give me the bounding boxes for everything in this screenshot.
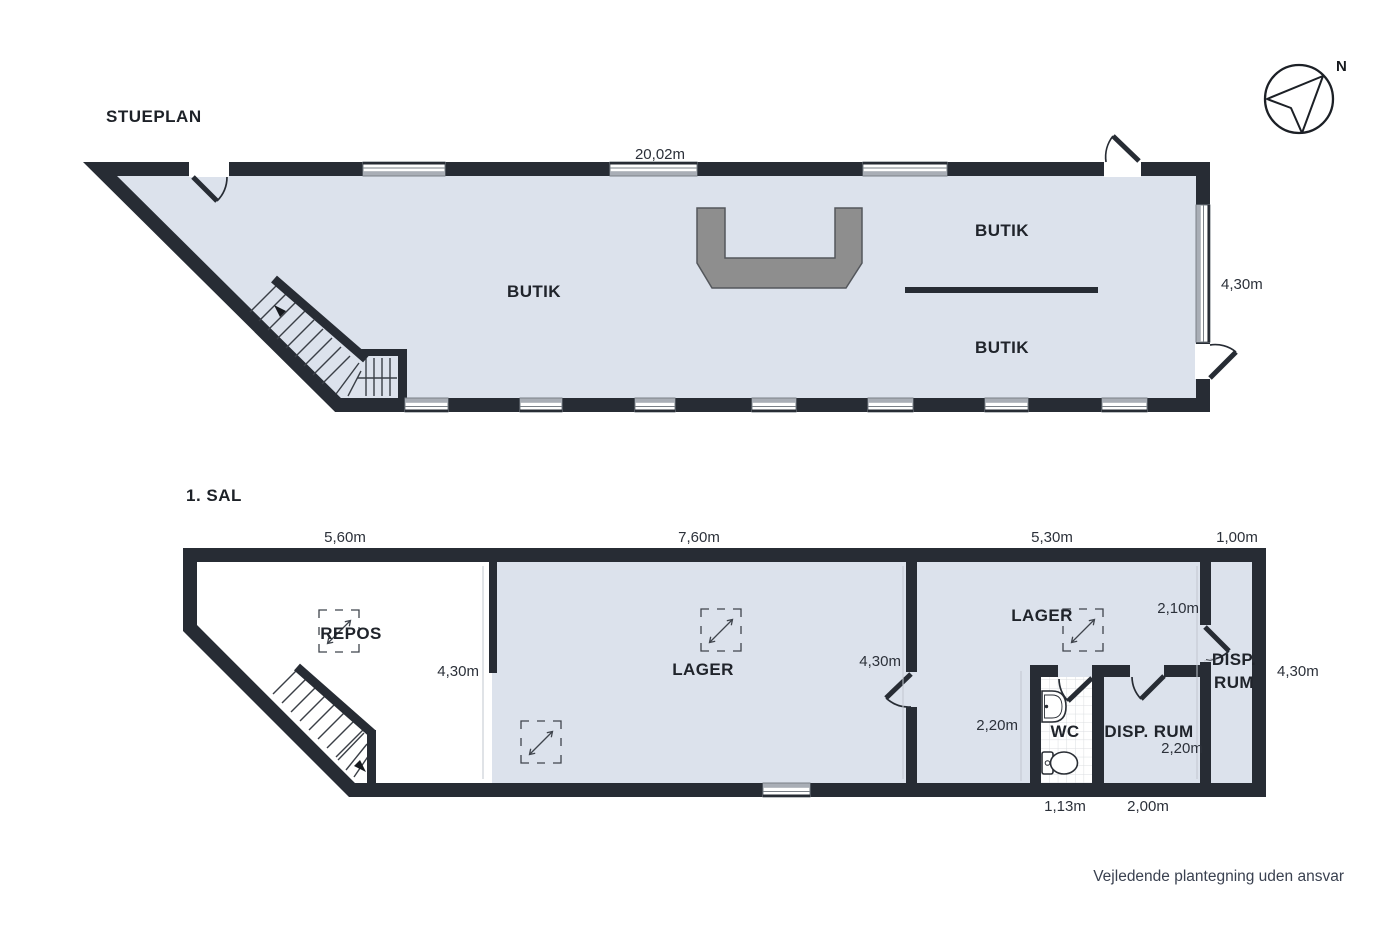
sink-icon: [1042, 691, 1066, 722]
entrance-door-top-right: [1104, 136, 1141, 177]
plan-title-sal1: 1. SAL: [186, 486, 242, 505]
north-label: N: [1336, 58, 1347, 75]
dim-label-disp-center-width: 2,00m: [1127, 798, 1169, 815]
dim-label-wc-width: 1,13m: [1044, 798, 1086, 815]
footer-note: Vejledende plantegning uden ansvar: [1093, 868, 1344, 885]
window: [985, 398, 1028, 412]
dim-label-width: 20,02m: [635, 146, 685, 163]
window: [635, 398, 675, 412]
dim-label-disp-right-wall: 2,10m: [1157, 600, 1199, 617]
dim-label-disp-right-width: 1,00m: [1216, 529, 1258, 546]
stueplan-plan: STUEPLAN 20,02m 4,30m BUTIK BUTIK BUTIK: [100, 107, 1263, 412]
window: [868, 398, 913, 412]
dim-label-lager-right-width: 5,30m: [1031, 529, 1073, 546]
wall-disp-right-bottom: [1200, 662, 1211, 790]
window: [610, 162, 697, 176]
room-label-disp-right-line1: DISP.: [1212, 650, 1256, 669]
window: [520, 398, 562, 412]
room-label-lager-right: LAGER: [1011, 606, 1073, 625]
wall-disp-top-right: [1164, 665, 1211, 677]
stair-landing-wall: [356, 349, 405, 356]
dim-label-repos-depth: 4,30m: [437, 663, 479, 680]
dim-label-lager-width: 7,60m: [678, 529, 720, 546]
stair-landing-wall-right: [398, 349, 407, 405]
window: [752, 398, 796, 412]
wall-lager-right-top: [906, 555, 917, 672]
dim-label-lager-depth: 4,30m: [859, 653, 901, 670]
room-label-repos: REPOS: [320, 624, 382, 643]
wall-wc-left: [1030, 665, 1041, 790]
window: [405, 398, 448, 412]
window: [863, 162, 947, 176]
toilet-icon: [1042, 752, 1078, 774]
wall-disp-top-left: [1092, 665, 1130, 677]
floorplan-drawing: STUEPLAN 20,02m 4,30m BUTIK BUTIK BUTIK: [0, 0, 1400, 933]
window: [763, 783, 810, 797]
stair-landing-wall-right: [367, 730, 376, 790]
room-label-wc: WC: [1050, 722, 1079, 741]
dim-label-repos-width: 5,60m: [324, 529, 366, 546]
wall-wc-right: [1092, 677, 1104, 790]
window: [1102, 398, 1147, 412]
dim-label-right-depth: 4,30m: [1277, 663, 1319, 680]
wall-disp-right-top: [1200, 555, 1211, 625]
dim-label-disp-center-depth: 2,20m: [1161, 740, 1203, 757]
wall-lager-right-bottom: [906, 707, 917, 790]
wall-wc-top: [1030, 665, 1058, 677]
room-label-lager-center: LAGER: [672, 660, 734, 679]
room-label-butik-upper: BUTIK: [975, 221, 1029, 240]
entrance-door-right: [1195, 344, 1236, 379]
room-label-butik-lower: BUTIK: [975, 338, 1029, 357]
dim-label-depth-right: 4,30m: [1221, 276, 1263, 293]
compass-icon: N: [1265, 58, 1347, 133]
window: [363, 162, 445, 176]
plan-title-stueplan: STUEPLAN: [106, 107, 202, 126]
counter-line: [905, 287, 1098, 293]
dim-label-wc-depth: 2,20m: [976, 717, 1018, 734]
room-label-butik-center: BUTIK: [507, 282, 561, 301]
room-label-disp-center: DISP. RUM: [1104, 722, 1193, 741]
room-label-disp-right-line2: RUM: [1214, 673, 1254, 692]
wall-repos-lager: [489, 555, 497, 673]
window: [1196, 205, 1210, 342]
floorplan-page: STUEPLAN 20,02m 4,30m BUTIK BUTIK BUTIK: [0, 0, 1400, 933]
sal1-plan: 1. SAL 5,60m 7,60m 5,30m 1,00m 4,30m 4,3…: [186, 486, 1319, 815]
